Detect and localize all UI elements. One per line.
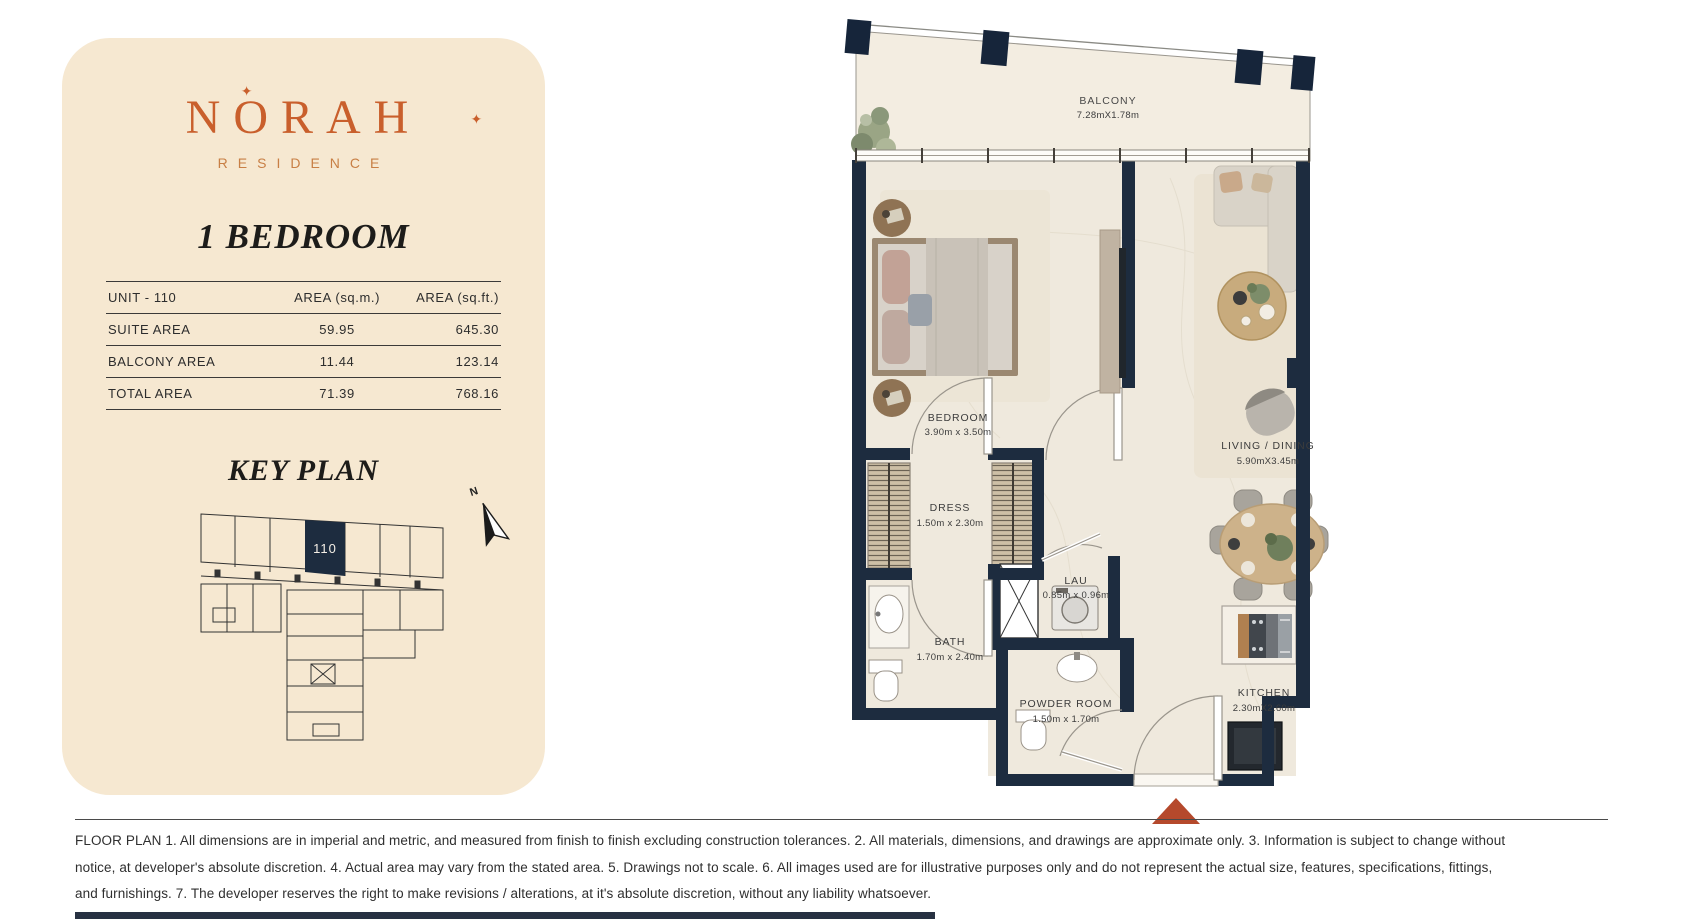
- north-label: N: [468, 485, 479, 499]
- divider: [75, 819, 1608, 820]
- brand-subtitle: RESIDENCE: [62, 155, 545, 171]
- room-dims: 1.50m x 2.30m: [917, 518, 984, 529]
- floor-plan: BALCONY 7.28mX1.78m: [790, 8, 1330, 828]
- row-sqm: 11.44: [284, 346, 391, 378]
- disclaimer-line: and furnishings. 7. The developer reserv…: [75, 881, 1615, 908]
- key-plan-unit-label: 110: [313, 541, 337, 556]
- room-label: BALCONY: [1079, 95, 1136, 107]
- area-table: UNIT - 110 AREA (sq.m.) AREA (sq.ft.) SU…: [106, 281, 501, 410]
- room-label: BATH: [935, 636, 966, 648]
- room-dims: 1.70m x 2.40m: [917, 652, 984, 663]
- disclaimer-line: FLOOR PLAN 1. All dimensions are in impe…: [75, 828, 1615, 855]
- cropped-footer-bar: [75, 912, 935, 919]
- room-label: BEDROOM: [928, 412, 989, 424]
- row-label: TOTAL AREA: [106, 378, 284, 410]
- room-dims: 3.90m x 3.50m: [925, 427, 992, 438]
- room-dims: 2.30mX2.60m: [1233, 703, 1295, 714]
- room-dims: 0.85m x 0.96m: [1043, 590, 1110, 601]
- row-sqft: 768.16: [390, 378, 501, 410]
- table-row: BALCONY AREA 11.44 123.14: [106, 346, 501, 378]
- row-label: BALCONY AREA: [106, 346, 284, 378]
- area-table-header-unit: UNIT - 110: [106, 282, 284, 314]
- disclaimer-line: notice, at developer's absolute discreti…: [75, 855, 1615, 882]
- key-plan-drawing: 110: [195, 498, 465, 748]
- room-label: KITCHEN: [1238, 687, 1290, 699]
- room-label: DRESS: [930, 502, 971, 514]
- table-row: SUITE AREA 59.95 645.30: [106, 314, 501, 346]
- window-wall: [856, 148, 1310, 163]
- room-dims: 7.28mX1.78m: [1077, 110, 1139, 121]
- tv-console: [1100, 230, 1126, 393]
- brochure-card: NORAH ✦ ✦ RESIDENCE 1 BEDROOM UNIT - 110…: [62, 38, 545, 795]
- brand-logo: NORAH ✦ ✦: [62, 90, 545, 145]
- entry-arrow-icon: [1152, 798, 1200, 824]
- row-sqft: 645.30: [390, 314, 501, 346]
- sparkle-icon: ✦: [241, 84, 253, 98]
- brand-name: NORAH: [186, 90, 422, 145]
- room-dims: 1.50m x 1.70m: [1033, 714, 1100, 725]
- table-row: TOTAL AREA 71.39 768.16: [106, 378, 501, 410]
- area-table-header-row: UNIT - 110 AREA (sq.m.) AREA (sq.ft.): [106, 282, 501, 314]
- balcony-area: BALCONY 7.28mX1.78m: [845, 19, 1316, 158]
- room-label: LIVING / DINING: [1221, 440, 1314, 452]
- key-plan-title: KEY PLAN: [62, 454, 545, 488]
- living-furniture: [1194, 166, 1310, 478]
- row-sqm: 59.95: [284, 314, 391, 346]
- room-label: POWDER ROOM: [1020, 698, 1113, 710]
- row-label: SUITE AREA: [106, 314, 284, 346]
- sparkle-icon: ✦: [470, 112, 482, 126]
- unit-type-title: 1 BEDROOM: [62, 217, 545, 257]
- area-table-header-sqft: AREA (sq.ft.): [390, 282, 501, 314]
- room-dims: 5.90mX3.45m: [1237, 456, 1299, 467]
- disclaimer-text: FLOOR PLAN 1. All dimensions are in impe…: [75, 828, 1615, 908]
- area-table-header-sqm: AREA (sq.m.): [284, 282, 391, 314]
- row-sqm: 71.39: [284, 378, 391, 410]
- north-arrow-icon: N: [468, 486, 512, 548]
- row-sqft: 123.14: [390, 346, 501, 378]
- room-label: LAU: [1064, 575, 1087, 587]
